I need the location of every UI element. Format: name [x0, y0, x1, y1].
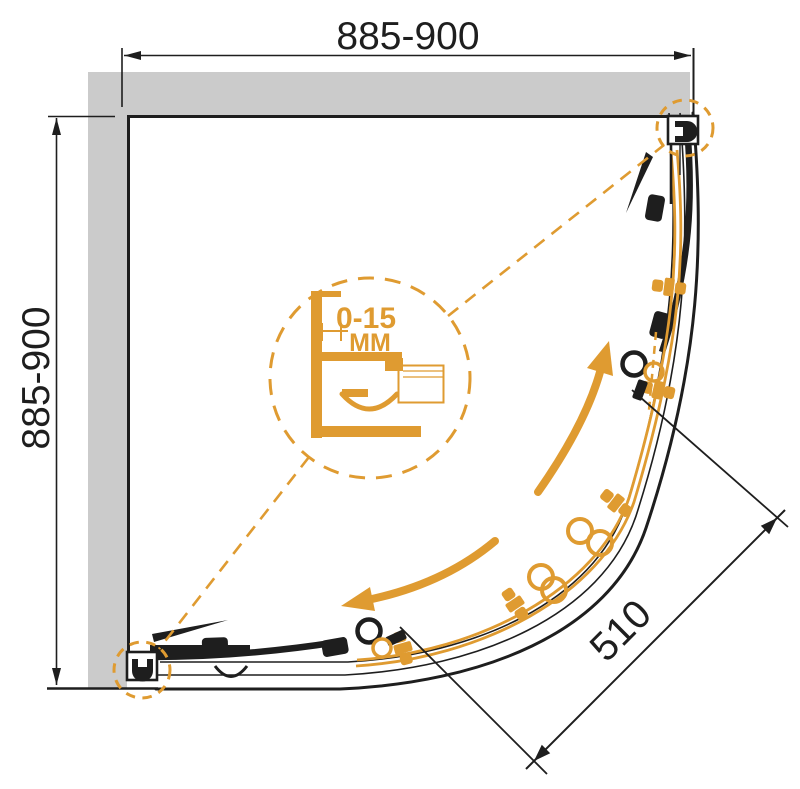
wall-top [88, 72, 690, 115]
dimension-opening-label: 510 [582, 592, 660, 670]
profile-d-notch [138, 659, 147, 667]
profile-d-notch [675, 127, 683, 136]
wall-top-fill [88, 72, 690, 115]
arrowhead-up [52, 118, 61, 135]
leader-line-top-right [448, 145, 664, 316]
technical-drawing-page: 885-900 885-900 510 [0, 0, 800, 789]
arrowhead-up-right-icon [587, 341, 613, 376]
clamp-bracket [202, 637, 229, 655]
dimension-opening: 510 [400, 390, 788, 774]
clamp-bracket [644, 194, 665, 223]
section-box-lines [403, 371, 443, 377]
clamp-bracket [321, 636, 350, 657]
dimension-top-label: 885-900 [336, 15, 479, 58]
arrowhead-down [52, 668, 61, 685]
section-bottom-bar [320, 426, 421, 437]
panel-clamps [202, 194, 672, 658]
arrowhead-down-left-icon [341, 587, 375, 611]
door-handle-ring-black [623, 353, 646, 376]
arrow-curve-down [372, 541, 495, 599]
section-wall-bar [311, 292, 322, 438]
sliding-door-arc-inner [357, 152, 675, 660]
arrowhead-right [674, 51, 691, 60]
wall-left [88, 72, 127, 688]
dimension-line [526, 510, 785, 769]
arrowhead-left [124, 51, 141, 60]
dimension-left-label: 885-900 [15, 306, 58, 449]
arrow-curve-up [538, 372, 600, 492]
leader-line-bottom-left [159, 457, 309, 649]
detail-unit-label: MM [349, 329, 391, 357]
shower-enclosure-plan-drawing: 885-900 885-900 510 [0, 0, 800, 789]
glass-line-outer [158, 113, 685, 675]
wall-left-fill [88, 72, 127, 688]
door-handle-ring-orange-small [373, 639, 391, 657]
extension-line [632, 390, 788, 527]
